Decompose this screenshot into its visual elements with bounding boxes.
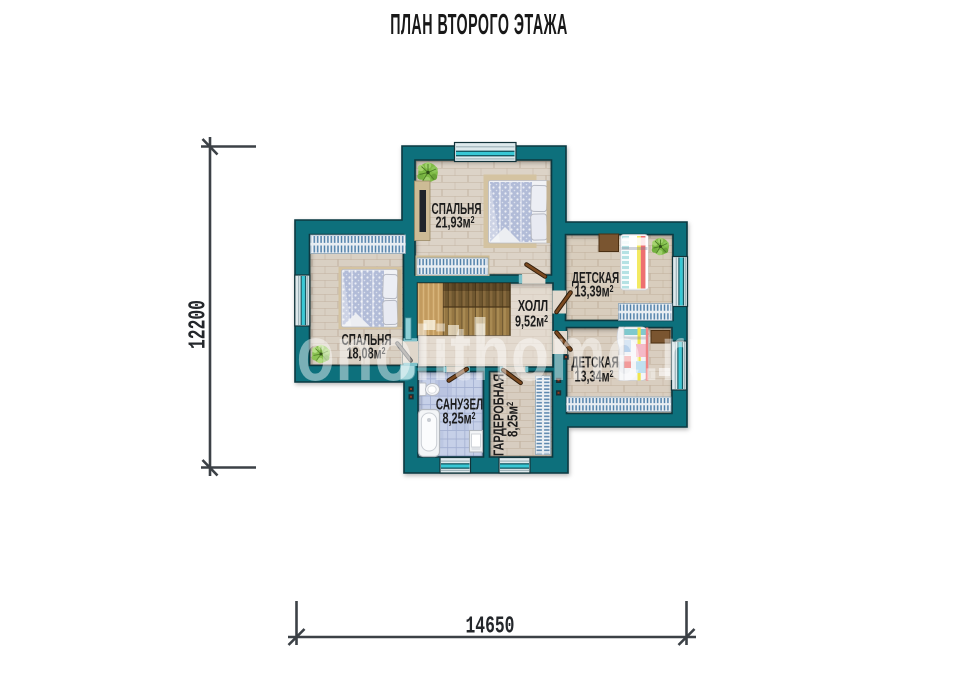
svg-text:13,39м2: 13,39м2	[574, 283, 613, 300]
svg-text:21,93м2: 21,93м2	[435, 214, 474, 231]
svg-text:ПЛАН ВТОРОГО ЭТАЖА: ПЛАН ВТОРОГО ЭТАЖА	[390, 9, 568, 41]
svg-text:14650: 14650	[466, 614, 515, 641]
svg-text:8,25м2: 8,25м2	[443, 410, 476, 427]
svg-text:12200: 12200	[186, 300, 213, 349]
svg-text:8,25м2: 8,25м2	[504, 402, 521, 437]
svg-text:monolithome.ru: monolithome.ru	[240, 309, 725, 396]
